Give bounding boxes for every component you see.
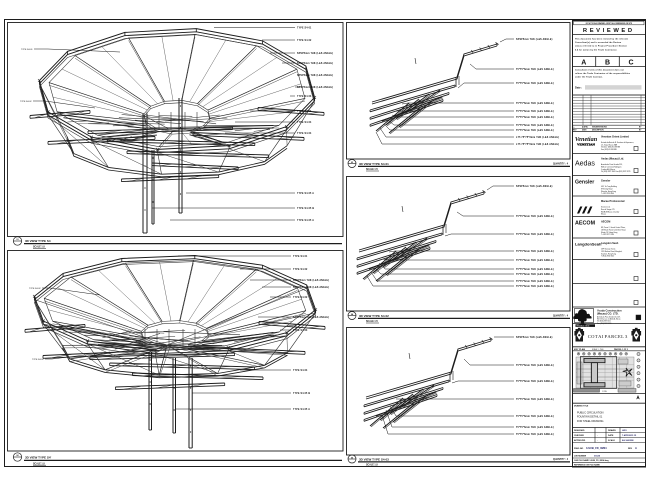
svg-text:VENETIAN: VENETIAN xyxy=(577,143,595,147)
svg-text:JOB NUMBER: JOB NUMBER xyxy=(574,455,587,457)
svg-text:3-SUB_FD_0M04: 3-SUB_FD_0M04 xyxy=(586,446,607,450)
svg-text:L75 75*75*6mm THK (L&S ANGLE): L75 75*75*6mm THK (L&S ANGLE) xyxy=(516,136,559,139)
svg-text:LWO: LWO xyxy=(622,430,627,432)
svg-text:SPSP5mm THK (L&S ANGLE): SPSP5mm THK (L&S ANGLE) xyxy=(297,52,333,55)
svg-text:TYPE S4-04: TYPE S4-04 xyxy=(297,121,312,124)
svg-text:SPSP5mm THK (L&S ANGLE): SPSP5mm THK (L&S ANGLE) xyxy=(297,86,333,89)
svg-text:DATE: DATE xyxy=(608,434,614,437)
svg-text:TYPE S4-02: TYPE S4-02 xyxy=(32,359,44,361)
svg-text:75*75*6mm THK (L&S ANGLE): 75*75*6mm THK (L&S ANGLE) xyxy=(516,129,554,132)
svg-text:C O T A I P A R C E L 3: C O T A I P A R C E L 3 xyxy=(588,334,628,339)
svg-text:This document has been revised: This document has been revised by the re… xyxy=(575,38,628,41)
svg-text:Rua de Xangai 175: Rua de Xangai 175 xyxy=(601,209,615,211)
svg-text:8 Fleming Road: 8 Fleming Road xyxy=(601,188,612,190)
svg-text:TYPE S4-03: TYPE S4-03 xyxy=(297,110,312,113)
svg-text:PUBLIC CIRCULATION: PUBLIC CIRCULATION xyxy=(577,411,604,414)
svg-text:TYPE S4-04: TYPE S4-04 xyxy=(293,369,308,372)
svg-text:75*75*6mm THK (L&S ANGLE): 75*75*6mm THK (L&S ANGLE) xyxy=(516,268,554,271)
svg-text:3D VIEW TYPE S4-03: 3D VIEW TYPE S4-03 xyxy=(359,457,389,461)
svg-text:31520: 31520 xyxy=(594,455,601,457)
svg-text:TYPE S4-05 B: TYPE S4-05 B xyxy=(297,207,314,210)
svg-text:T +852 2317 7000: T +852 2317 7000 xyxy=(601,234,614,236)
svg-text:TYPE S4-01: TYPE S4-01 xyxy=(293,255,308,258)
svg-text:AECOM: AECOM xyxy=(575,221,596,227)
svg-text:TYPE S4-02: TYPE S4-02 xyxy=(297,39,312,42)
svg-text:LangdonSeah: LangdonSeah xyxy=(575,242,602,247)
svg-text:Gensler: Gensler xyxy=(601,180,610,183)
svg-text:DRAWING TITLE: DRAWING TITLE xyxy=(574,404,589,407)
svg-text:SPSP5mm THK (L&S ANGLE): SPSP5mm THK (L&S ANGLE) xyxy=(516,185,553,188)
svg-text:(Macau) CO. LTD.: (Macau) CO. LTD. xyxy=(597,312,619,316)
svg-text:SCALE: SCALE xyxy=(608,439,615,442)
svg-text:CHECKED: CHECKED xyxy=(574,435,584,437)
svg-text:75*75*6mm THK (L&S ANGLE): 75*75*6mm THK (L&S ANGLE) xyxy=(516,102,554,105)
svg-text:QUANTITY : 4: QUANTITY : 4 xyxy=(553,162,569,165)
svg-text:75*75*6mm THK (L&S ANGLE): 75*75*6mm THK (L&S ANGLE) xyxy=(516,116,554,119)
svg-text:Kowloon, Hong Kong: Kowloon, Hong Kong xyxy=(601,253,616,255)
svg-text:TYPE S4-03: TYPE S4-03 xyxy=(297,95,312,98)
svg-text:29/F Suncorp Tower,: 29/F Suncorp Tower, xyxy=(601,249,616,251)
svg-text:APPROVED: APPROVED xyxy=(574,439,586,442)
svg-text:Macau Professional: Macau Professional xyxy=(601,200,625,203)
svg-text:CAD FILE NAME 3-SUB_FD_0M04.dw: CAD FILE NAME 3-SUB_FD_0M04.dwg xyxy=(574,459,610,462)
svg-text:TYPE S4-02: TYPE S4-02 xyxy=(293,268,308,271)
svg-text:75*75*6mm THK (L&S ANGLE): 75*75*6mm THK (L&S ANGLE) xyxy=(516,433,554,436)
svg-text:Macau: Macau xyxy=(601,214,606,216)
svg-text:75*75*6mm THK (L&S ANGLE): 75*75*6mm THK (L&S ANGLE) xyxy=(516,380,554,383)
svg-text:75*75*6mm THK (L&S ANGLE): 75*75*6mm THK (L&S ANGLE) xyxy=(516,82,554,85)
svg-text:SPSP5mm THK (L&S ANGLE): SPSP5mm THK (L&S ANGLE) xyxy=(516,336,553,339)
svg-text:75*75*6mm THK (L&S ANGLE): 75*75*6mm THK (L&S ANGLE) xyxy=(516,426,554,429)
svg-text:Date :: Date : xyxy=(575,86,582,90)
svg-text:75*75*6mm THK (L&S ANGLE): 75*75*6mm THK (L&S ANGLE) xyxy=(516,124,554,127)
svg-text:T (852) 2830 3500: T (852) 2830 3500 xyxy=(601,256,614,258)
svg-text:Edificio Comercial Rodrigues: Edificio Comercial Rodrigues xyxy=(601,166,622,168)
svg-text:AECOM: AECOM xyxy=(601,221,610,224)
svg-text:75*75*6mm THK (L&S ANGLE): 75*75*6mm THK (L&S ANGLE) xyxy=(516,215,554,218)
svg-text:QUANTITY : 4: QUANTITY : 4 xyxy=(553,458,569,461)
svg-text:SPSP5mm THK (L&S ANGLE): SPSP5mm THK (L&S ANGLE) xyxy=(293,279,329,282)
svg-text:SPSP5mm THK (L&S ANGLE): SPSP5mm THK (L&S ANGLE) xyxy=(293,316,329,319)
svg-text:AS SHOWN: AS SHOWN xyxy=(622,439,634,442)
svg-text:TYPE S4-01: TYPE S4-01 xyxy=(21,49,33,51)
svg-text:75*75*6mm THK (L&S ANGLE): 75*75*6mm THK (L&S ANGLE) xyxy=(516,273,554,276)
svg-text:3D VIEW TYPE S4-02: 3D VIEW TYPE S4-02 xyxy=(359,314,389,318)
svg-text:TYPE S4-01: TYPE S4-01 xyxy=(297,27,312,30)
svg-text:L75 75*75*6mm THK (L&S ANGLE): L75 75*75*6mm THK (L&S ANGLE) xyxy=(516,143,559,146)
svg-text:Wanchai, Hong Kong: Wanchai, Hong Kong xyxy=(601,191,616,193)
svg-text:Telefone: (853) 81 188 888: Telefone: (853) 81 188 888 xyxy=(601,147,620,149)
svg-text:TYPE S4-03: TYPE S4-03 xyxy=(293,329,308,332)
svg-text:SPSP5mm THK (L&S ANGLE): SPSP5mm THK (L&S ANGLE) xyxy=(297,62,333,65)
svg-text:FOR STEEL DRAWING: FOR STEEL DRAWING xyxy=(577,420,604,423)
svg-text:REVIEWED: REVIEWED xyxy=(583,28,635,34)
svg-text:Gensler: Gensler xyxy=(575,180,594,186)
svg-text:TYPE S4-05 A: TYPE S4-05 A xyxy=(297,192,314,195)
svg-text:REV: REV xyxy=(628,448,633,450)
svg-text:3D VIEW TYPE S4′: 3D VIEW TYPE S4′ xyxy=(25,456,52,460)
svg-text:Aedas (Macau) Ltd.: Aedas (Macau) Ltd. xyxy=(601,158,624,161)
svg-text:TYPE S4-05 A: TYPE S4-05 A xyxy=(297,219,314,222)
svg-text:75*75*6mm THK (L&S ANGLE): 75*75*6mm THK (L&S ANGLE) xyxy=(516,285,554,288)
svg-text:Tel: (853) 2837 3521: Tel: (853) 2837 3521 xyxy=(597,321,611,323)
svg-text:T +852 2595 0500: T +852 2595 0500 xyxy=(601,193,614,195)
svg-text:75*75*6mm THK (L&S ANGLE): 75*75*6mm THK (L&S ANGLE) xyxy=(516,68,554,71)
svg-text:Langdon Seah: Langdon Seah xyxy=(601,242,619,245)
svg-text:7 APR/2015 15: 7 APR/2015 15 xyxy=(622,434,637,437)
svg-text:75*75*6mm THK (L&S ANGLE): 75*75*6mm THK (L&S ANGLE) xyxy=(516,250,554,253)
svg-text:TYPE S4-05 A: TYPE S4-05 A xyxy=(293,408,310,411)
svg-text:DESIGNED: DESIGNED xyxy=(574,430,585,432)
svg-text:SCALE 1:5: SCALE 1:5 xyxy=(366,463,378,466)
svg-text:Tel (853) 2872 3941 Fax (853): Tel (853) 2872 3941 Fax (853) 2872 3279 xyxy=(601,171,631,173)
svg-text:DWG NO: DWG NO xyxy=(574,448,584,450)
svg-text:3D VIEW TYPE S4: 3D VIEW TYPE S4 xyxy=(25,239,51,243)
svg-text:SPSP5mm THK (L&S ANGLE): SPSP5mm THK (L&S ANGLE) xyxy=(297,74,333,77)
svg-text:75*75*6mm THK (L&S ANGLE): 75*75*6mm THK (L&S ANGLE) xyxy=(516,259,554,262)
svg-text:3D VIEW TYPE S4-01: 3D VIEW TYPE S4-01 xyxy=(359,162,389,166)
svg-text:REFERENCE ON FILE NAME: REFERENCE ON FILE NAME xyxy=(574,464,600,467)
svg-text:B: B xyxy=(605,60,610,67)
svg-text:DRAWN: DRAWN xyxy=(608,429,616,432)
svg-text:75*75*6mm THK (L&S ANGLE): 75*75*6mm THK (L&S ANGLE) xyxy=(516,398,554,401)
svg-text:A: A xyxy=(581,60,586,67)
svg-text:75*75*6mm THK (L&S ANGLE): 75*75*6mm THK (L&S ANGLE) xyxy=(516,233,554,236)
svg-text:under the Trade Contract.: under the Trade Contract. xyxy=(575,75,603,78)
svg-text:FOUNTAIN DETAIL 01: FOUNTAIN DETAIL 01 xyxy=(577,416,603,419)
svg-text:Venetian Orient Limited: Venetian Orient Limited xyxy=(601,136,629,139)
svg-text:relieve the Trade Contractor o: relieve the Trade Contractor of the resp… xyxy=(575,72,631,75)
svg-text:SPSP5mm THK (L&S ANGLE): SPSP5mm THK (L&S ANGLE) xyxy=(293,286,329,289)
svg-text:SCALE 1:5: SCALE 1:5 xyxy=(33,462,45,465)
svg-text:C: C xyxy=(628,60,633,67)
svg-text:75*75*6mm THK (L&S ANGLE): 75*75*6mm THK (L&S ANGLE) xyxy=(516,364,554,367)
svg-text:Fax: (853) 81 188 889: Fax: (853) 81 188 889 xyxy=(601,149,617,151)
svg-text:Consultant(s) and is accorded: Consultant(s) and is accorded the Review xyxy=(575,41,621,44)
svg-text:TYPE S4-04: TYPE S4-04 xyxy=(297,132,312,135)
svg-text:75*75*6mm THK (L&S ANGLE): 75*75*6mm THK (L&S ANGLE) xyxy=(516,110,554,113)
svg-text:status referred to in Project: status referred to in Project Procedure … xyxy=(575,45,628,48)
svg-text:Aedas: Aedas xyxy=(575,161,595,168)
svg-text:TYPE S4-02: TYPE S4-02 xyxy=(293,296,308,299)
svg-text:Consultant review of this docu: Consultant review of this document does … xyxy=(575,69,624,72)
svg-text:TYPE S4-02: TYPE S4-02 xyxy=(20,101,32,103)
svg-text:SPSP5mm THK (L&S ANGLE): SPSP5mm THK (L&S ANGLE) xyxy=(516,38,553,41)
svg-text:TYPE S4-02: TYPE S4-02 xyxy=(29,288,41,290)
svg-text:QUANTITY : 4: QUANTITY : 4 xyxy=(553,314,569,317)
svg-text:PROJECT TITLE: PROJECT TITLE xyxy=(577,325,591,327)
svg-text:75*75*6mm THK (L&S ANGLE): 75*75*6mm THK (L&S ANGLE) xyxy=(516,415,554,418)
svg-text:75*75*6mm THK (L&S ANGLE): 75*75*6mm THK (L&S ANGLE) xyxy=(516,280,554,283)
svg-text:A: A xyxy=(635,446,637,450)
svg-text:4F2, Tai Tung Building: 4F2, Tai Tung Building xyxy=(601,186,617,188)
svg-text:5.4 for action by the Trade Co: 5.4 for action by the Trade Contractor. xyxy=(575,48,618,51)
svg-text:TYPE S4-05 B: TYPE S4-05 B xyxy=(293,392,310,395)
